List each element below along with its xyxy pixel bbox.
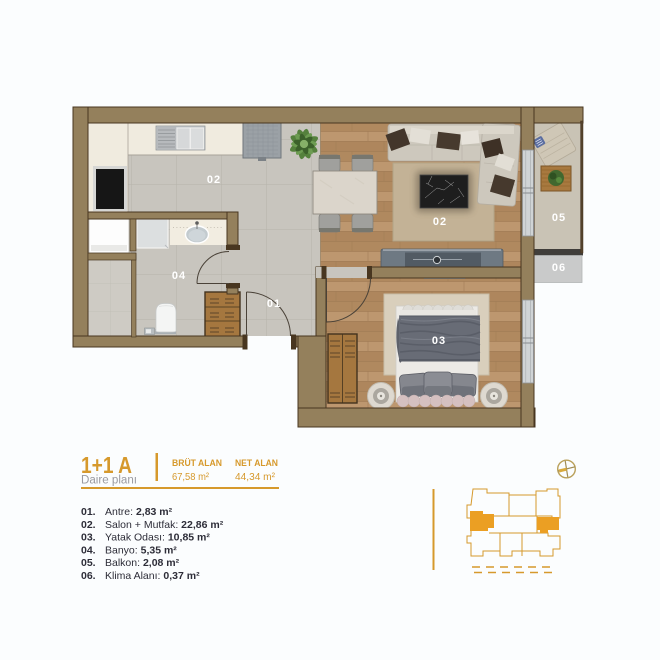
svg-text:04.Banyo: 5,35 m²: 04.Banyo: 5,35 m² [81,544,177,556]
svg-text:04: 04 [172,270,186,282]
svg-text:02: 02 [433,216,447,228]
svg-text:05: 05 [552,212,566,224]
svg-text:01.Antre: 2,83 m²: 01.Antre: 2,83 m² [81,506,173,518]
svg-text:01: 01 [267,298,281,310]
svg-text:44,34 m²: 44,34 m² [235,471,275,483]
svg-text:06: 06 [552,262,566,274]
svg-text:Daire planı: Daire planı [81,475,137,487]
svg-text:BRÜT ALAN: BRÜT ALAN [172,458,222,468]
svg-text:03: 03 [432,335,446,347]
svg-text:02: 02 [207,174,221,186]
svg-text:67,58 m²: 67,58 m² [172,471,209,483]
svg-text:NET ALAN: NET ALAN [235,458,278,468]
